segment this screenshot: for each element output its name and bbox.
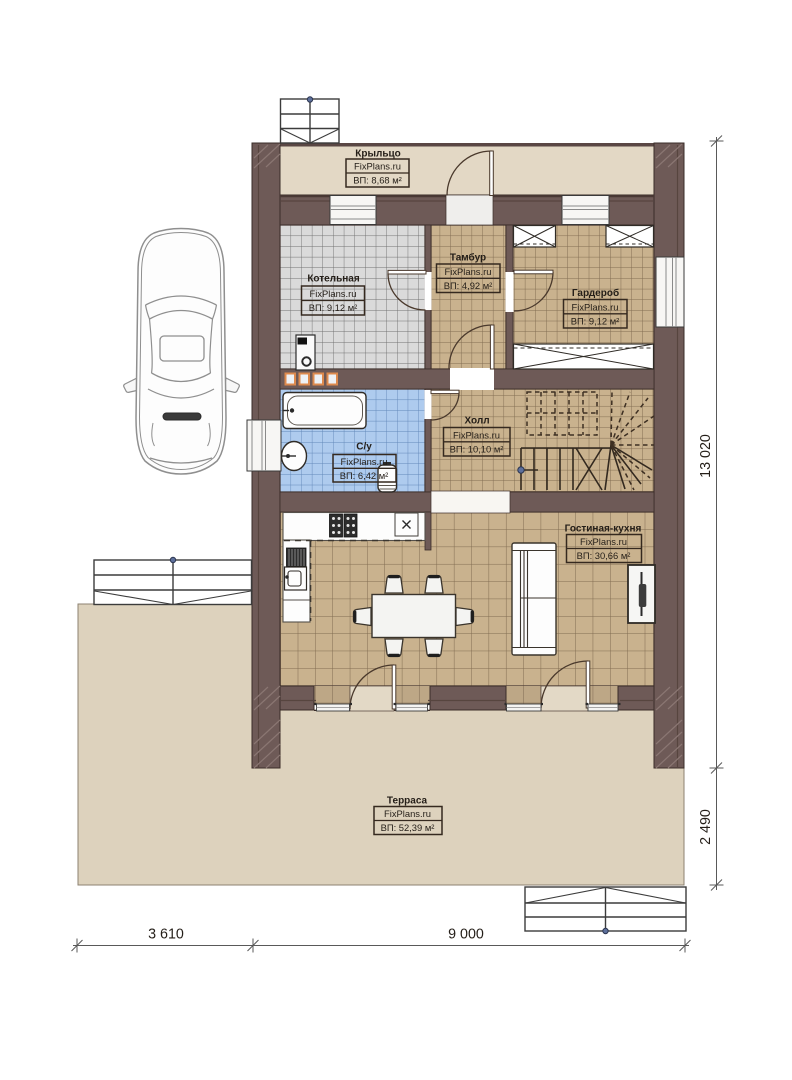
svg-text:2 490: 2 490 [698,809,714,845]
svg-text:FixPlans.ru: FixPlans.ru [310,288,357,299]
svg-text:FixPlans.ru: FixPlans.ru [580,536,627,547]
svg-text:ВП: 30,66 м²: ВП: 30,66 м² [577,550,631,561]
svg-text:FixPlans.ru: FixPlans.ru [572,301,619,312]
svg-text:Гостиная-кухня: Гостиная-кухня [565,524,642,535]
svg-text:Гардероб: Гардероб [572,287,619,299]
svg-text:Котельная: Котельная [307,274,360,285]
svg-text:FixPlans.ru: FixPlans.ru [445,266,492,277]
svg-text:ВП: 6,42 м²: ВП: 6,42 м² [340,470,389,481]
svg-text:С/у: С/у [356,442,372,453]
svg-text:Крыльцо: Крыльцо [355,149,401,160]
svg-text:3 610: 3 610 [148,927,184,943]
svg-text:FixPlans.ru: FixPlans.ru [354,161,401,172]
svg-text:13 020: 13 020 [698,434,714,478]
svg-text:ВП: 52,39 м²: ВП: 52,39 м² [381,822,435,833]
svg-text:ВП: 4,92 м²: ВП: 4,92 м² [444,280,493,291]
svg-text:ВП: 10,10 м²: ВП: 10,10 м² [450,443,504,454]
svg-text:Тамбур: Тамбур [450,252,486,264]
svg-text:9 000: 9 000 [448,927,484,943]
svg-text:FixPlans.ru: FixPlans.ru [384,808,431,819]
svg-text:Терраса: Терраса [387,796,428,807]
svg-text:Холл: Холл [464,416,489,427]
svg-text:ВП: 9,12 м²: ВП: 9,12 м² [571,315,620,326]
svg-text:FixPlans.ru: FixPlans.ru [341,456,388,467]
svg-text:ВП: 8,68 м²: ВП: 8,68 м² [353,175,402,186]
svg-text:FixPlans.ru: FixPlans.ru [453,429,500,440]
svg-text:ВП: 9,12 м²: ВП: 9,12 м² [309,302,358,313]
